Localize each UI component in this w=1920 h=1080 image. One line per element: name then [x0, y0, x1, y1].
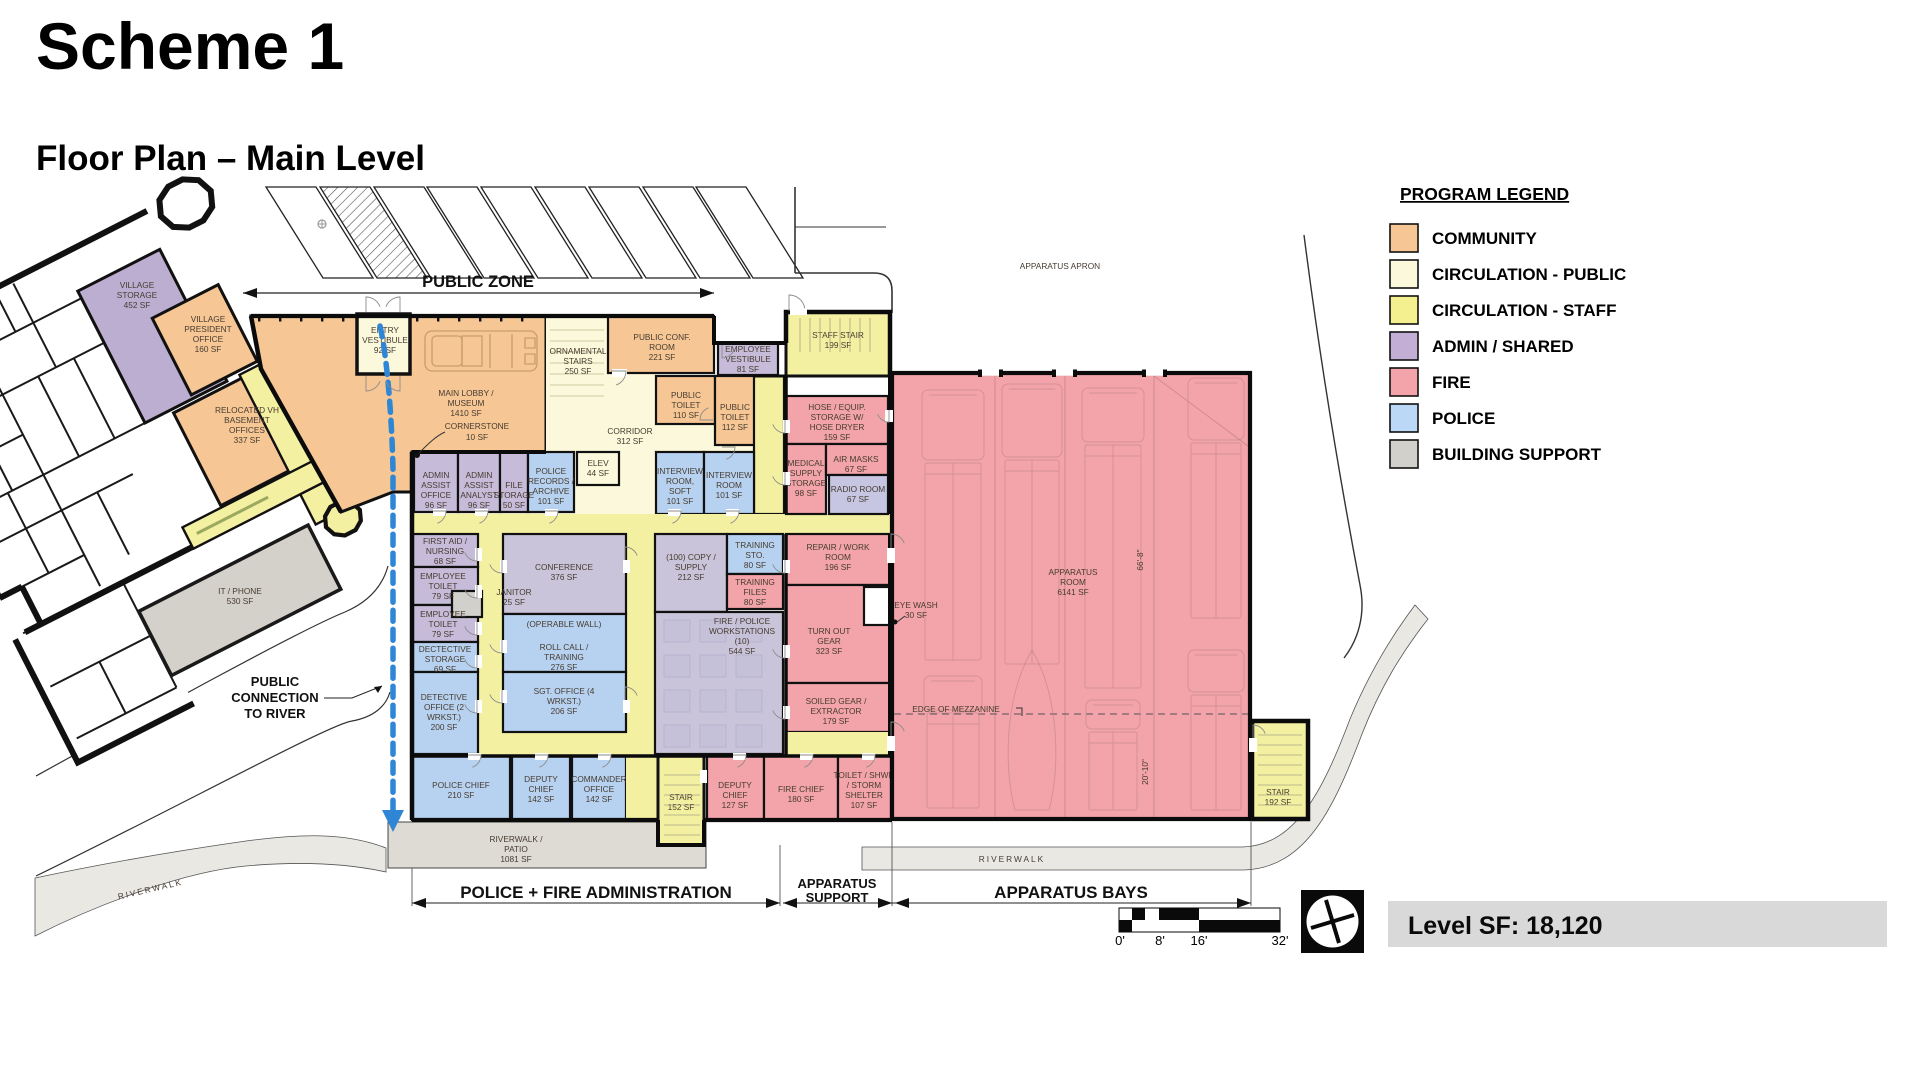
svg-text:20'-10": 20'-10"	[1140, 759, 1150, 785]
svg-text:EDGE OF MEZZANINE: EDGE OF MEZZANINE	[912, 704, 1000, 714]
svg-text:DEPUTYCHIEF127 SF: DEPUTYCHIEF127 SF	[718, 780, 752, 810]
svg-text:DEPUTYCHIEF142 SF: DEPUTYCHIEF142 SF	[524, 774, 558, 804]
svg-text:PROGRAM LEGEND: PROGRAM LEGEND	[1400, 184, 1569, 204]
svg-text:APPARATUS APRON: APPARATUS APRON	[1020, 261, 1100, 271]
svg-text:Scheme 1: Scheme 1	[36, 9, 344, 83]
svg-text:BUILDING SUPPORT: BUILDING SUPPORT	[1432, 445, 1602, 464]
svg-text:Floor Plan – Main Level: Floor Plan – Main Level	[36, 139, 425, 178]
svg-text:APPARATUSSUPPORT: APPARATUSSUPPORT	[798, 876, 877, 905]
svg-text:PUBLICCONNECTIONTO RIVER: PUBLICCONNECTIONTO RIVER	[231, 674, 318, 721]
svg-text:STAIR192 SF: STAIR192 SF	[1265, 787, 1292, 807]
svg-text:APPARATUS BAYS: APPARATUS BAYS	[994, 883, 1148, 902]
svg-text:0': 0'	[1115, 933, 1125, 948]
svg-text:POLICE: POLICE	[1432, 409, 1495, 428]
svg-text:Level SF: 18,120: Level SF: 18,120	[1408, 912, 1603, 940]
svg-text:COMMUNITY: COMMUNITY	[1432, 229, 1537, 248]
svg-text:POLICE + FIRE ADMINISTRATION: POLICE + FIRE ADMINISTRATION	[460, 883, 732, 902]
svg-text:CIRCULATION - PUBLIC: CIRCULATION - PUBLIC	[1432, 265, 1626, 284]
svg-text:32': 32'	[1272, 933, 1289, 948]
svg-text:(OPERABLE WALL): (OPERABLE WALL)	[527, 619, 602, 629]
svg-text:16': 16'	[1191, 933, 1208, 948]
svg-text:CIRCULATION - STAFF: CIRCULATION - STAFF	[1432, 301, 1616, 320]
svg-text:PUBLICTOILET110 SF: PUBLICTOILET110 SF	[671, 390, 701, 420]
svg-text:ADMIN / SHARED: ADMIN / SHARED	[1432, 337, 1574, 356]
svg-text:PUBLICTOILET112 SF: PUBLICTOILET112 SF	[720, 402, 750, 432]
svg-text:RIVERWALK: RIVERWALK	[979, 854, 1045, 864]
svg-text:8': 8'	[1155, 933, 1165, 948]
svg-text:ADMINASSISTOFFICE96 SF: ADMINASSISTOFFICE96 SF	[421, 470, 452, 510]
svg-text:PUBLIC ZONE: PUBLIC ZONE	[422, 273, 534, 291]
svg-text:FIRE: FIRE	[1432, 373, 1471, 392]
svg-text:66'-8": 66'-8"	[1135, 549, 1145, 570]
svg-text:ELEV44 SF: ELEV44 SF	[587, 458, 609, 478]
